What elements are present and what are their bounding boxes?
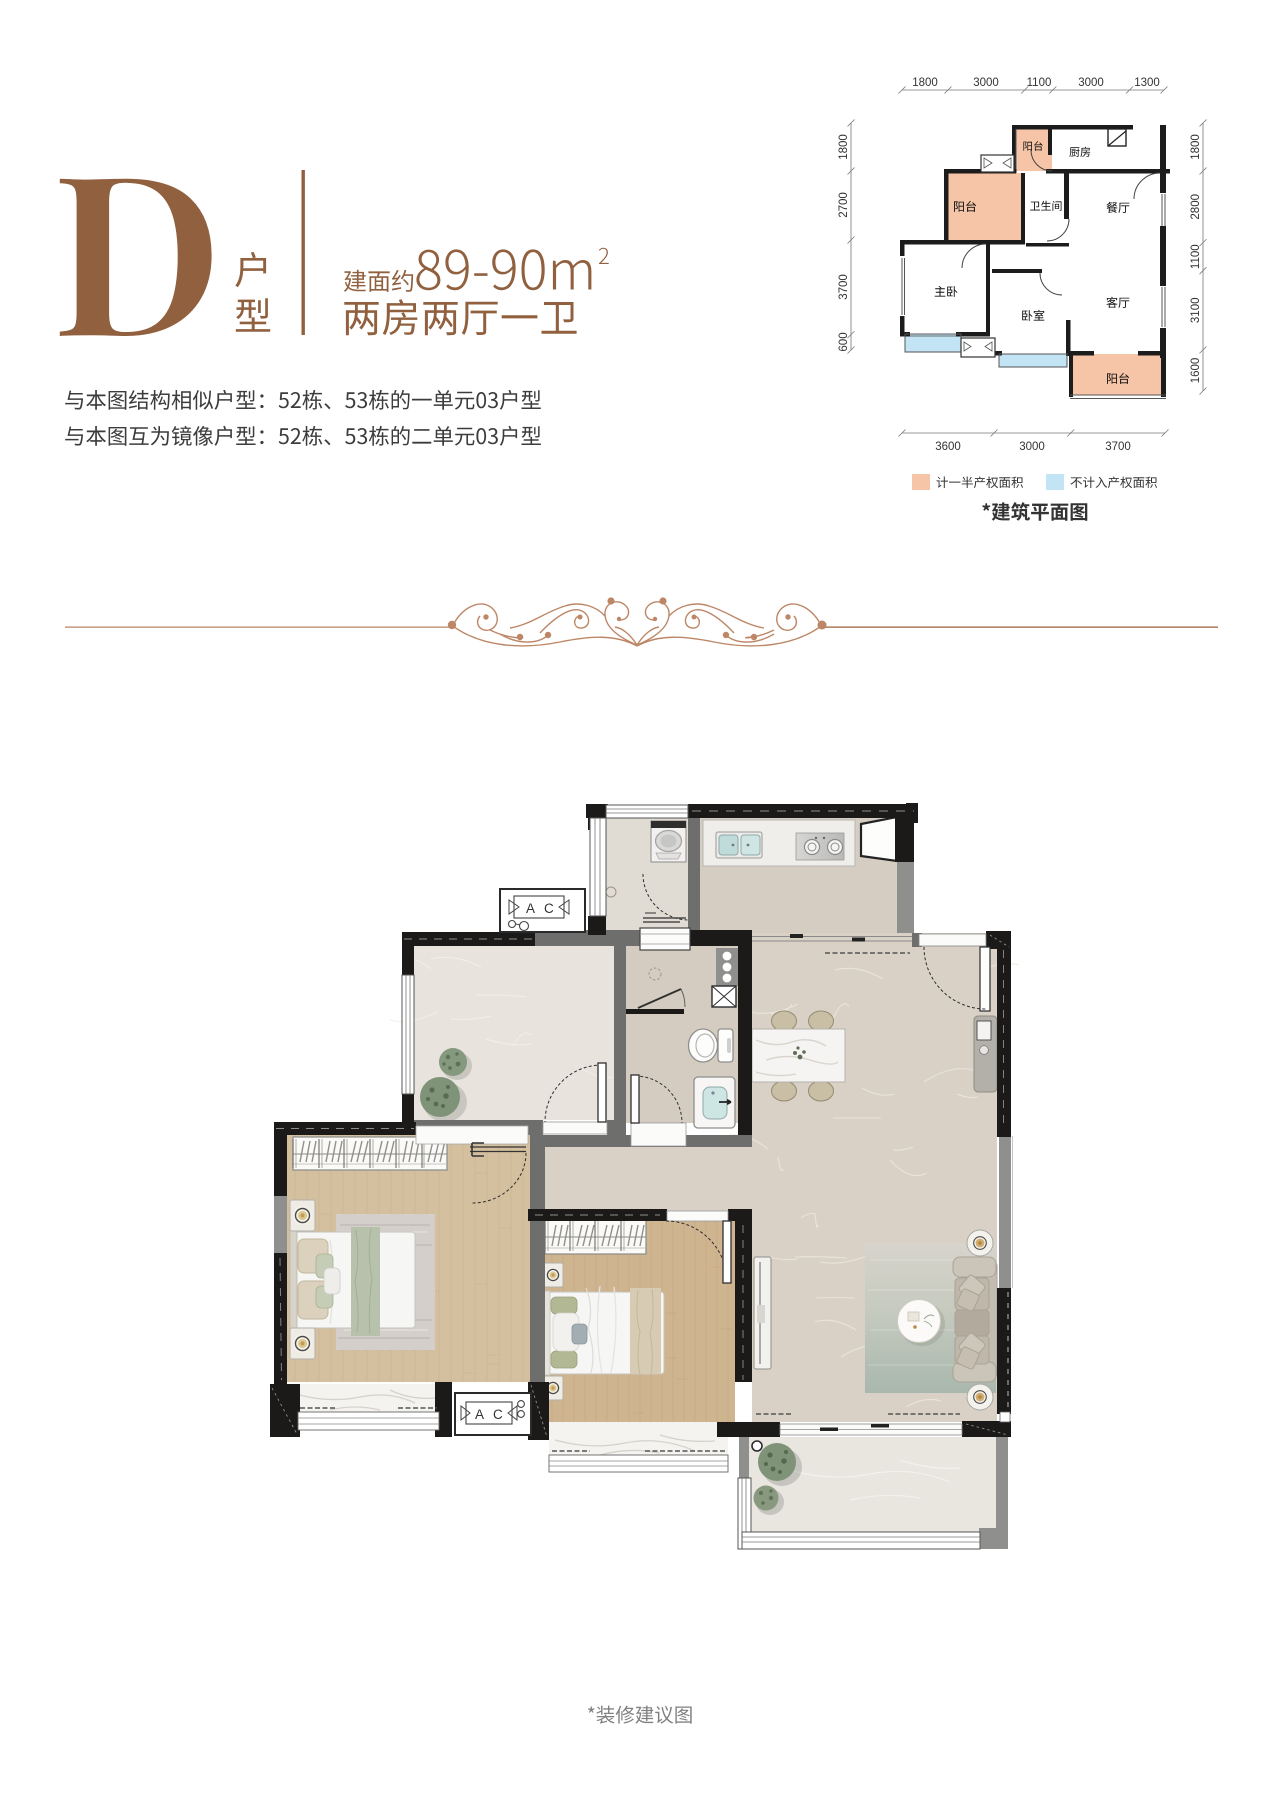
svg-text:3100: 3100 [1190,298,1202,324]
svg-text:A C: A C [526,901,557,916]
svg-text:1600: 1600 [1190,358,1202,384]
svg-text:3700: 3700 [838,274,850,300]
svg-text:1800: 1800 [912,77,938,89]
svg-text:3000: 3000 [1019,441,1045,453]
svg-text:2800: 2800 [1190,194,1202,220]
svg-text:2700: 2700 [838,192,850,218]
svg-text:3000: 3000 [1078,77,1104,89]
svg-text:1800: 1800 [838,134,850,160]
svg-text:3000: 3000 [973,77,999,89]
svg-text:1100: 1100 [1190,244,1202,269]
svg-text:3600: 3600 [935,441,961,453]
svg-text:A C: A C [475,1407,506,1422]
svg-text:3700: 3700 [1105,441,1131,453]
svg-text:1300: 1300 [1134,77,1160,89]
svg-text:1100: 1100 [1027,77,1052,89]
svg-text:1800: 1800 [1190,134,1202,160]
svg-text:600: 600 [838,332,850,351]
